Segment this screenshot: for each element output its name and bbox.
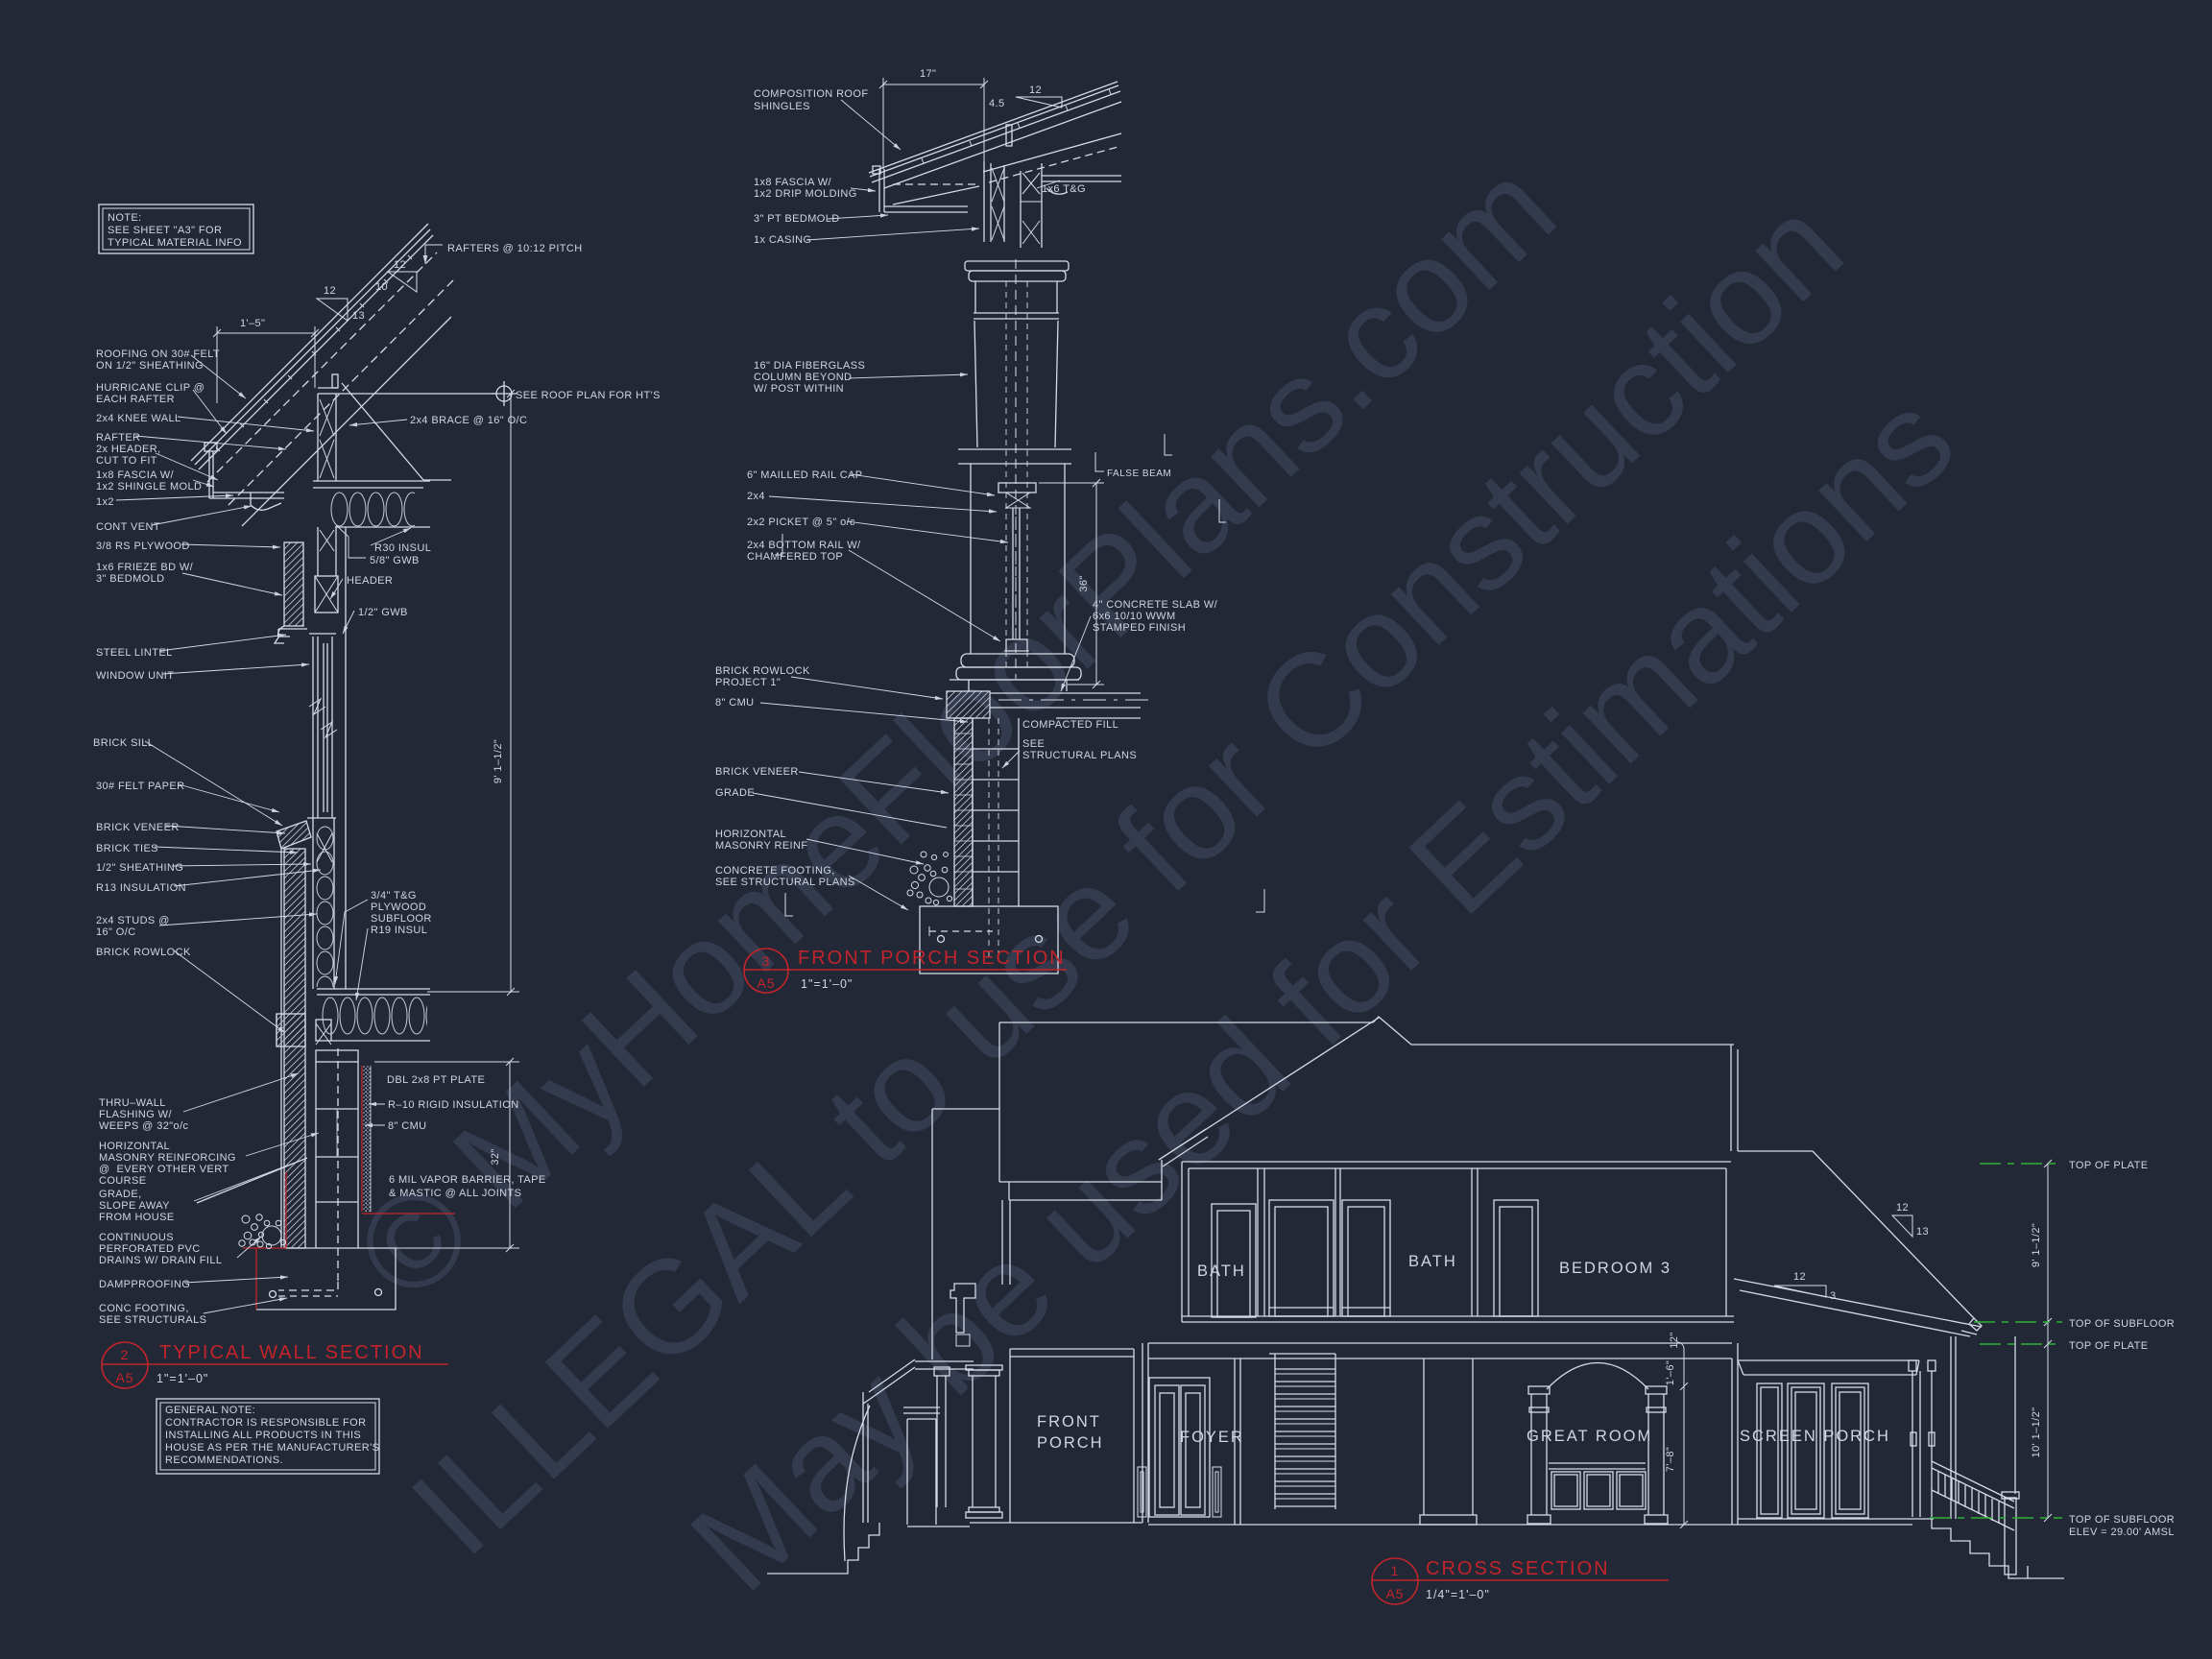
svg-text:FRONT PORCH SECTION: FRONT PORCH SECTION (798, 948, 1066, 969)
svg-text:BRICK VENEER: BRICK VENEER (715, 766, 799, 778)
svg-text:R–10 RIGID INSULATION: R–10 RIGID INSULATION (388, 1099, 519, 1111)
svg-text:INSTALLING ALL PRODUCTS IN THI: INSTALLING ALL PRODUCTS IN THIS (165, 1430, 361, 1441)
svg-text:A5: A5 (115, 1370, 133, 1385)
svg-text:1/2" GWB: 1/2" GWB (358, 607, 408, 618)
svg-text:1: 1 (1391, 1563, 1400, 1578)
svg-text:R19 INSUL: R19 INSUL (371, 925, 427, 936)
svg-text:8" CMU: 8" CMU (715, 697, 755, 709)
svg-text:R13 INSULATION: R13 INSULATION (96, 882, 186, 894)
svg-text:12: 12 (1896, 1202, 1909, 1214)
svg-text:WEEPS @ 32"o/c: WEEPS @ 32"o/c (99, 1120, 189, 1132)
svg-text:NOTE:: NOTE: (108, 212, 142, 224)
svg-text:2x HEADER,: 2x HEADER, (96, 444, 161, 455)
svg-text:PERFORATED PVC: PERFORATED PVC (99, 1243, 201, 1255)
svg-text:W/ POST WITHIN: W/ POST WITHIN (754, 383, 844, 395)
svg-text:10' 1–1/2": 10' 1–1/2" (2031, 1407, 2042, 1458)
svg-text:TOP OF SUBFLOOR: TOP OF SUBFLOOR (2069, 1514, 2175, 1526)
svg-text:FALSE BEAM: FALSE BEAM (1107, 469, 1171, 479)
svg-text:1/2" SHEATHING: 1/2" SHEATHING (96, 862, 183, 874)
svg-text:@ EVERY OTHER VERT: @ EVERY OTHER VERT (99, 1164, 229, 1175)
svg-text:36": 36" (1078, 575, 1090, 591)
svg-text:HORIZONTAL: HORIZONTAL (715, 829, 786, 840)
svg-text:BEDROOM 3: BEDROOM 3 (1559, 1260, 1671, 1277)
svg-text:12: 12 (394, 259, 406, 271)
svg-text:BRICK VENEER: BRICK VENEER (96, 822, 180, 833)
svg-text:2x4 BOTTOM RAIL W/: 2x4 BOTTOM RAIL W/ (747, 540, 861, 551)
svg-text:WINDOW UNIT: WINDOW UNIT (96, 670, 174, 682)
svg-text:MASONRY REINF: MASONRY REINF (715, 840, 807, 852)
svg-text:DAMPPROOFING: DAMPPROOFING (99, 1279, 190, 1290)
svg-text:1x CASING: 1x CASING (754, 234, 811, 246)
svg-text:BATH: BATH (1408, 1253, 1457, 1270)
svg-text:PLYWOOD: PLYWOOD (371, 902, 426, 913)
svg-text:1'–6": 1'–6" (1665, 1360, 1676, 1385)
svg-text:9' 1–1/2": 9' 1–1/2" (2031, 1223, 2042, 1267)
svg-text:ELEV = 29.00' AMSL: ELEV = 29.00' AMSL (2069, 1527, 2175, 1538)
svg-text:7'–8": 7'–8" (1665, 1447, 1676, 1472)
svg-text:16" O/C: 16" O/C (96, 926, 136, 938)
svg-text:1x6 T&G: 1x6 T&G (1042, 183, 1086, 195)
svg-text:EACH RAFTER: EACH RAFTER (96, 394, 175, 405)
svg-text:BRICK SILL: BRICK SILL (93, 737, 154, 749)
svg-text:30# FELT PAPER: 30# FELT PAPER (96, 781, 184, 792)
svg-text:A5: A5 (1385, 1586, 1404, 1601)
svg-text:1x8 FASCIA W/: 1x8 FASCIA W/ (96, 469, 175, 481)
svg-text:& MASTIC @ ALL JOINTS: & MASTIC @ ALL JOINTS (389, 1188, 521, 1199)
svg-text:RECOMMENDATIONS.: RECOMMENDATIONS. (165, 1455, 283, 1466)
svg-text:A5: A5 (757, 975, 775, 991)
svg-text:GENERAL NOTE:: GENERAL NOTE: (165, 1405, 255, 1416)
svg-text:GRADE: GRADE (715, 787, 755, 799)
svg-text:STRUCTURAL PLANS: STRUCTURAL PLANS (1022, 750, 1137, 761)
svg-text:SEE STRUCTURAL PLANS: SEE STRUCTURAL PLANS (715, 877, 855, 888)
svg-text:ROOFING ON 30# FELT: ROOFING ON 30# FELT (96, 349, 220, 360)
svg-text:GRADE,: GRADE, (99, 1189, 142, 1200)
svg-text:1x2 DRIP MOLDING: 1x2 DRIP MOLDING (754, 188, 857, 200)
svg-text:1'–5": 1'–5" (240, 318, 265, 329)
svg-text:3" PT BEDMOLD: 3" PT BEDMOLD (754, 213, 840, 225)
svg-text:PROJECT 1": PROJECT 1" (715, 677, 781, 688)
svg-text:SCREEN PORCH: SCREEN PORCH (1740, 1428, 1890, 1445)
svg-text:GREAT ROOM: GREAT ROOM (1527, 1428, 1652, 1445)
svg-text:2: 2 (121, 1347, 130, 1362)
svg-text:3/4" T&G: 3/4" T&G (371, 890, 417, 902)
svg-text:STAMPED FINISH: STAMPED FINISH (1093, 622, 1186, 634)
svg-text:SLOPE AWAY: SLOPE AWAY (99, 1200, 170, 1212)
svg-text:FRONT: FRONT (1037, 1413, 1101, 1431)
svg-text:12: 12 (324, 285, 336, 297)
svg-text:RAFTER: RAFTER (96, 432, 140, 444)
svg-text:FLASHING W/: FLASHING W/ (99, 1109, 172, 1120)
svg-text:TYPICAL WALL SECTION: TYPICAL WALL SECTION (159, 1342, 424, 1363)
svg-text:12: 12 (1029, 84, 1042, 96)
svg-text:3/8 RS PLYWOOD: 3/8 RS PLYWOOD (96, 541, 190, 552)
svg-text:5/8" GWB: 5/8" GWB (370, 555, 420, 566)
svg-text:2x2 PICKET @ 5" o/c: 2x2 PICKET @ 5" o/c (747, 517, 855, 528)
svg-text:SUBFLOOR: SUBFLOOR (371, 913, 432, 925)
svg-text:THRU–WALL: THRU–WALL (99, 1097, 166, 1109)
svg-text:3: 3 (762, 953, 771, 969)
svg-text:TYPICAL MATERIAL INFO: TYPICAL MATERIAL INFO (108, 237, 242, 249)
svg-text:CHAMFERED TOP: CHAMFERED TOP (747, 551, 843, 563)
svg-text:13: 13 (352, 310, 365, 322)
svg-text:13: 13 (1916, 1226, 1929, 1238)
svg-text:R30 INSUL: R30 INSUL (374, 542, 431, 554)
svg-text:COURSE: COURSE (99, 1175, 146, 1187)
svg-text:CONC FOOTING,: CONC FOOTING, (99, 1303, 189, 1314)
svg-text:2x4 BRACE @ 16" O/C: 2x4 BRACE @ 16" O/C (410, 415, 527, 426)
svg-text:FROM HOUSE: FROM HOUSE (99, 1212, 175, 1223)
svg-text:STEEL LINTEL: STEEL LINTEL (96, 647, 173, 659)
svg-text:PORCH: PORCH (1037, 1434, 1104, 1452)
svg-text:32": 32" (490, 1148, 501, 1165)
svg-text:TOP OF PLATE: TOP OF PLATE (2069, 1340, 2148, 1352)
svg-text:1x2 SHINGLE MOLD: 1x2 SHINGLE MOLD (96, 481, 202, 493)
svg-text:HOUSE AS PER THE MANUFACTURER': HOUSE AS PER THE MANUFACTURER'S (165, 1442, 379, 1454)
svg-text:MASONRY REINFORCING: MASONRY REINFORCING (99, 1152, 236, 1164)
svg-text:CONT VENT: CONT VENT (96, 521, 160, 533)
svg-text:2x4: 2x4 (747, 491, 765, 502)
svg-text:CONTRACTOR IS RESPONSIBLE FOR: CONTRACTOR IS RESPONSIBLE FOR (165, 1417, 366, 1429)
svg-text:3: 3 (1830, 1290, 1837, 1302)
svg-text:4.5: 4.5 (989, 98, 1005, 109)
svg-text:TOP OF PLATE: TOP OF PLATE (2069, 1160, 2148, 1171)
svg-text:CONCRETE FOOTING,: CONCRETE FOOTING, (715, 865, 835, 877)
svg-text:10: 10 (375, 281, 388, 293)
svg-text:6" MAILLED RAIL CAP: 6" MAILLED RAIL CAP (747, 469, 863, 481)
svg-text:BRICK ROWLOCK: BRICK ROWLOCK (715, 665, 810, 677)
svg-text:CONTINUOUS: CONTINUOUS (99, 1232, 174, 1243)
svg-text:1x6 FRIEZE BD W/: 1x6 FRIEZE BD W/ (96, 562, 194, 573)
svg-text:17": 17" (920, 68, 936, 80)
svg-text:1"=1'–0": 1"=1'–0" (156, 1372, 208, 1385)
svg-text:SEE STRUCTURALS: SEE STRUCTURALS (99, 1314, 206, 1326)
svg-text:SEE: SEE (1022, 738, 1045, 750)
svg-text:SHINGLES: SHINGLES (754, 101, 810, 112)
svg-text:RAFTERS @ 10:12 PITCH: RAFTERS @ 10:12 PITCH (447, 243, 583, 254)
svg-text:COMPOSITION ROOF: COMPOSITION ROOF (754, 88, 868, 100)
svg-text:1x2: 1x2 (96, 496, 114, 508)
svg-text:COLUMN BEYOND: COLUMN BEYOND (754, 372, 852, 383)
svg-text:2x4 STUDS @: 2x4 STUDS @ (96, 915, 170, 926)
svg-text:2x4 KNEE WALL: 2x4 KNEE WALL (96, 413, 181, 424)
svg-text:12": 12" (1669, 1332, 1680, 1348)
svg-text:BRICK TIES: BRICK TIES (96, 843, 158, 854)
svg-text:ON 1/2" SHEATHING: ON 1/2" SHEATHING (96, 360, 204, 372)
svg-text:FOYER: FOYER (1180, 1429, 1244, 1446)
svg-text:TOP OF SUBFLOOR: TOP OF SUBFLOOR (2069, 1318, 2175, 1330)
svg-text:BATH: BATH (1197, 1262, 1246, 1280)
svg-text:16" DIA FIBERGLASS: 16" DIA FIBERGLASS (754, 360, 865, 372)
svg-text:HURRICANE CLIP @: HURRICANE CLIP @ (96, 382, 204, 394)
svg-text:6x6 10/10 WWM: 6x6 10/10 WWM (1093, 611, 1176, 622)
svg-text:6 MIL VAPOR BARRIER, TAPE: 6 MIL VAPOR BARRIER, TAPE (389, 1174, 546, 1186)
svg-text:BRICK ROWLOCK: BRICK ROWLOCK (96, 947, 191, 958)
svg-text:9' 1–1/2": 9' 1–1/2" (493, 739, 504, 783)
svg-text:CUT TO FIT: CUT TO FIT (96, 455, 157, 467)
svg-text:1x8 FASCIA W/: 1x8 FASCIA W/ (754, 177, 832, 188)
svg-text:8" CMU: 8" CMU (388, 1120, 427, 1132)
svg-text:3" BEDMOLD: 3" BEDMOLD (96, 573, 164, 585)
svg-text:1"=1'–0": 1"=1'–0" (801, 977, 853, 991)
svg-text:CROSS SECTION: CROSS SECTION (1426, 1558, 1610, 1579)
svg-text:DBL 2x8 PT PLATE: DBL 2x8 PT PLATE (387, 1074, 485, 1086)
svg-text:SEE ROOF PLAN FOR HT'S: SEE ROOF PLAN FOR HT'S (516, 390, 661, 401)
svg-text:12: 12 (1793, 1271, 1806, 1283)
svg-text:HORIZONTAL: HORIZONTAL (99, 1141, 170, 1152)
svg-text:SEE SHEET "A3" FOR: SEE SHEET "A3" FOR (108, 225, 222, 236)
svg-text:HEADER: HEADER (347, 575, 393, 587)
svg-text:4" CONCRETE SLAB W/: 4" CONCRETE SLAB W/ (1093, 599, 1218, 611)
svg-text:1/4"=1'–0": 1/4"=1'–0" (1426, 1588, 1490, 1601)
svg-text:DRAINS W/ DRAIN FILL: DRAINS W/ DRAIN FILL (99, 1255, 222, 1266)
svg-text:COMPACTED FILL: COMPACTED FILL (1022, 719, 1118, 731)
